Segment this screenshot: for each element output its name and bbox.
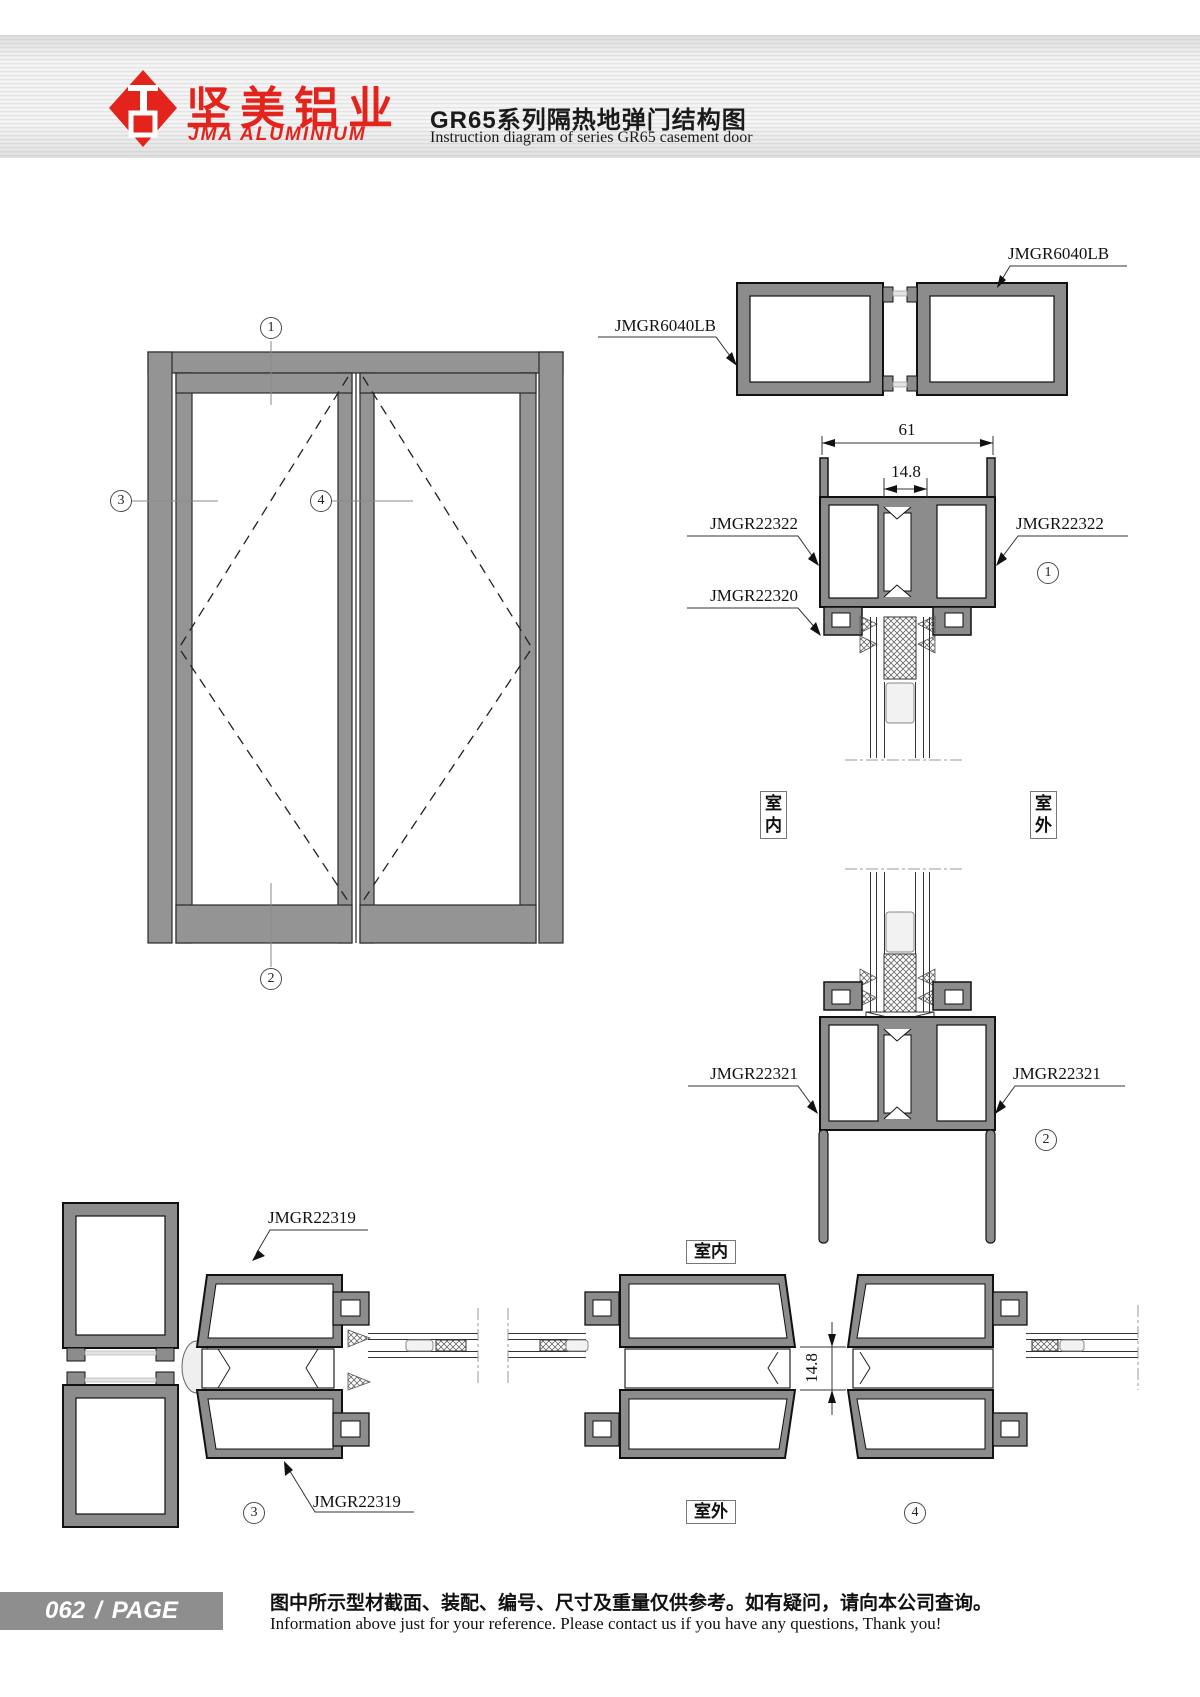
page-number-separator: / [95, 1597, 102, 1625]
part-label-jmgr6040lb-left: JMGR6040LB [598, 316, 716, 336]
section-1-glass [871, 617, 930, 758]
frame-section-6040 [737, 283, 1067, 395]
section-marker-2: 2 [1035, 1129, 1057, 1151]
section-marker-3: 3 [243, 1502, 265, 1524]
indoor-label-section: 室内 [760, 791, 787, 839]
page-label: PAGE [112, 1597, 178, 1625]
part-label-jmgr22319-top: JMGR22319 [268, 1208, 356, 1228]
callout-4: 4 [310, 490, 332, 512]
part-label-jmgr22321-left: JMGR22321 [680, 1064, 798, 1084]
callout-2: 2 [260, 968, 282, 990]
outdoor-label-section: 室外 [1030, 791, 1057, 839]
plan-frame-jamb [63, 1203, 178, 1527]
outdoor-label-plan: 室外 [686, 1500, 736, 1524]
logo-company-name-en: JMA ALUMINIUM [188, 124, 367, 146]
glass-break-lines [845, 760, 965, 869]
part-label-jmgr22319-bottom: JMGR22319 [313, 1492, 401, 1512]
jma-logo-icon [109, 70, 177, 147]
section-marker-1: 1 [1037, 562, 1059, 584]
page-number: 062 [45, 1597, 85, 1625]
part-label-jmgr22322-right: JMGR22322 [1016, 514, 1104, 534]
page-number-badge: 062 / PAGE [0, 1592, 223, 1630]
part-label-jmgr22321-right: JMGR22321 [1013, 1064, 1101, 1084]
footer-note-en: Information above just for your referenc… [270, 1614, 941, 1634]
door-elevation [148, 352, 563, 943]
callout-1: 1 [260, 317, 282, 339]
part-label-jmgr22320: JMGR22320 [680, 586, 798, 606]
part-label-jmgr6040lb-right: JMGR6040LB [1008, 244, 1109, 264]
section-marker-4: 4 [904, 1502, 926, 1524]
part-label-jmgr22322-left: JMGR22322 [680, 514, 798, 534]
page-subtitle: Instruction diagram of series GR65 casem… [430, 129, 753, 147]
footer-note-cn: 图中所示型材截面、装配、编号、尺寸及重量仅供参考。如有疑问，请向本公司查询。 [270, 1588, 992, 1615]
section-3-profile [182, 1275, 370, 1458]
page: 坚美铝业 JMA ALUMINIUM GR65系列隔热地弹门结构图 Instru… [0, 0, 1200, 1697]
dimension-14-8-top: 14.8 [876, 462, 936, 482]
section-2-glass [866, 872, 934, 1028]
dimension-14-8-plan: 14.8 [802, 1338, 822, 1398]
callout-3: 3 [110, 490, 132, 512]
indoor-label-plan: 室内 [686, 1240, 736, 1264]
dimension-61: 61 [877, 420, 937, 440]
